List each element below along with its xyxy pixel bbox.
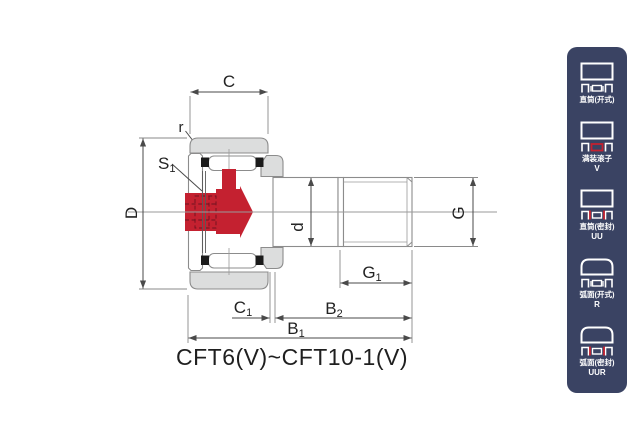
dim-label-B2: B2 [325, 299, 342, 320]
sidebar-item-straight-sealed[interactable]: 直筒(密封) UU [579, 189, 615, 242]
sidebar-item-code: V [594, 165, 599, 173]
sidebar-item-label: 直筒(密封) [580, 223, 615, 232]
sidebar-item-code: UUR [588, 369, 605, 377]
page: C r S1 D d G G1 C1 B2 B1 CFT6(V)~CFT10-1… [0, 0, 640, 440]
bearing-type-sidebar: 直筒(开式) 满装滚子 V 直筒(密封) [567, 47, 627, 393]
sidebar-item-label: 弧面(密封) [580, 359, 615, 368]
dim-label-r: r [179, 119, 184, 136]
sidebar-item-label: 满装滚子 [582, 155, 612, 164]
crowned-sealed-bearing-icon [579, 325, 615, 357]
dim-label-C: C [223, 72, 235, 91]
sidebar-item-straight-open[interactable]: 直筒(开式) [579, 62, 615, 105]
sidebar-item-code: R [594, 301, 600, 309]
sidebar-item-crowned-sealed[interactable]: 弧面(密封) UUR [579, 325, 615, 378]
bearing-cross-section-diagram: C r S1 D d G G1 C1 B2 B1 [0, 0, 640, 440]
dim-label-G1: G1 [362, 263, 381, 284]
sidebar-item-code: UU [591, 233, 603, 241]
full-complement-roller-icon [579, 121, 615, 153]
dim-label-C1: C1 [234, 298, 252, 319]
dim-label-B1: B1 [287, 319, 304, 340]
sidebar-item-label: 弧面(开式) [580, 291, 615, 300]
straight-open-bearing-icon [579, 62, 615, 94]
model-range-title: CFT6(V)~CFT10-1(V) [140, 344, 444, 371]
dim-label-S1: S1 [158, 154, 175, 175]
dim-label-G: G [449, 206, 468, 219]
crowned-open-bearing-icon [579, 257, 615, 289]
sidebar-item-full-complement[interactable]: 满装滚子 V [579, 121, 615, 174]
dim-label-D: D [122, 207, 141, 219]
sidebar-item-crowned-open[interactable]: 弧面(开式) R [579, 257, 615, 310]
dim-label-d: d [288, 222, 307, 231]
straight-sealed-bearing-icon [579, 189, 615, 221]
sidebar-item-label: 直筒(开式) [580, 96, 615, 105]
